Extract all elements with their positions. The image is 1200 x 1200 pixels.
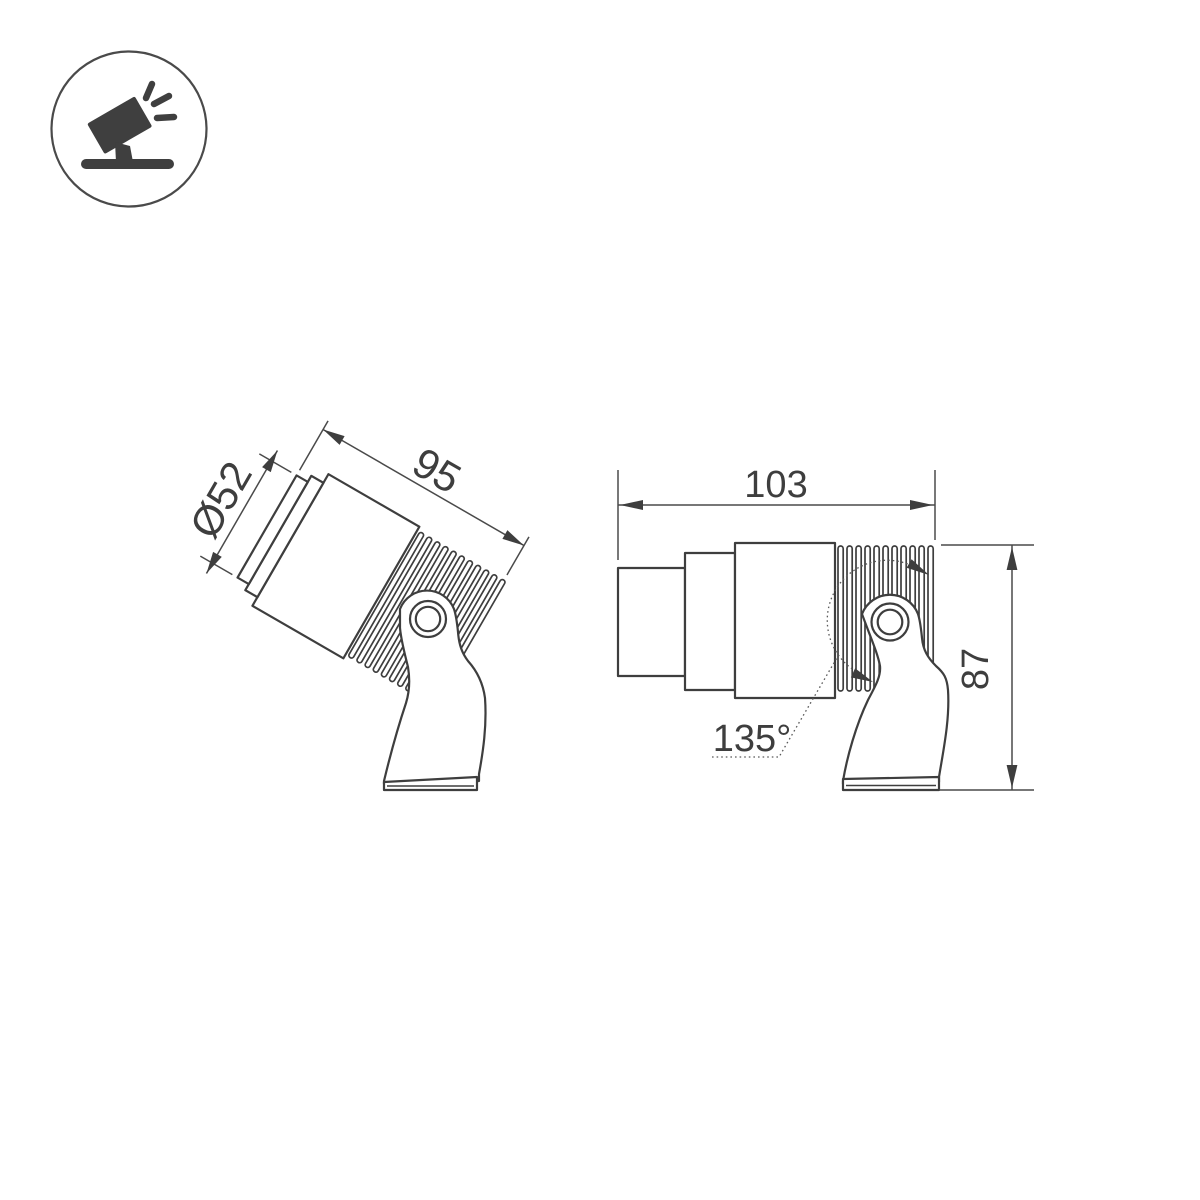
light-rays-icon	[146, 84, 174, 118]
front-cylinder	[618, 568, 685, 676]
tilted-view: Ø52 95	[162, 352, 548, 790]
pivot-screw	[416, 607, 440, 631]
arrowhead	[620, 500, 643, 510]
lamp-housing	[252, 474, 419, 658]
dimension-label-95: 95	[405, 438, 469, 502]
side-view: 103 87 135°	[618, 464, 1034, 790]
pivot-screw	[878, 610, 903, 635]
dimension-height-87: 87	[939, 545, 1034, 790]
dimension-label-87: 87	[955, 648, 997, 690]
technical-drawing: Ø52 95	[0, 0, 1200, 1200]
lamp-housing	[735, 543, 835, 698]
arrowhead	[1007, 765, 1018, 788]
arrowhead	[202, 552, 222, 576]
brand-logo	[52, 52, 207, 207]
extension-line	[300, 421, 329, 470]
bezel-ring	[685, 553, 735, 690]
arrowhead	[1007, 547, 1018, 570]
lamp-body-tilted: Ø52 95	[162, 352, 548, 709]
spotlight-icon	[81, 84, 174, 169]
spotlight-base	[81, 159, 174, 169]
dimension-label-135: 135°	[713, 718, 792, 760]
arrowhead	[910, 500, 933, 510]
drawing-sheet: Ø52 95	[0, 0, 1200, 1200]
dimension-label-103: 103	[744, 464, 807, 506]
arrowhead	[262, 448, 282, 472]
bracket-base-plate	[843, 777, 939, 790]
